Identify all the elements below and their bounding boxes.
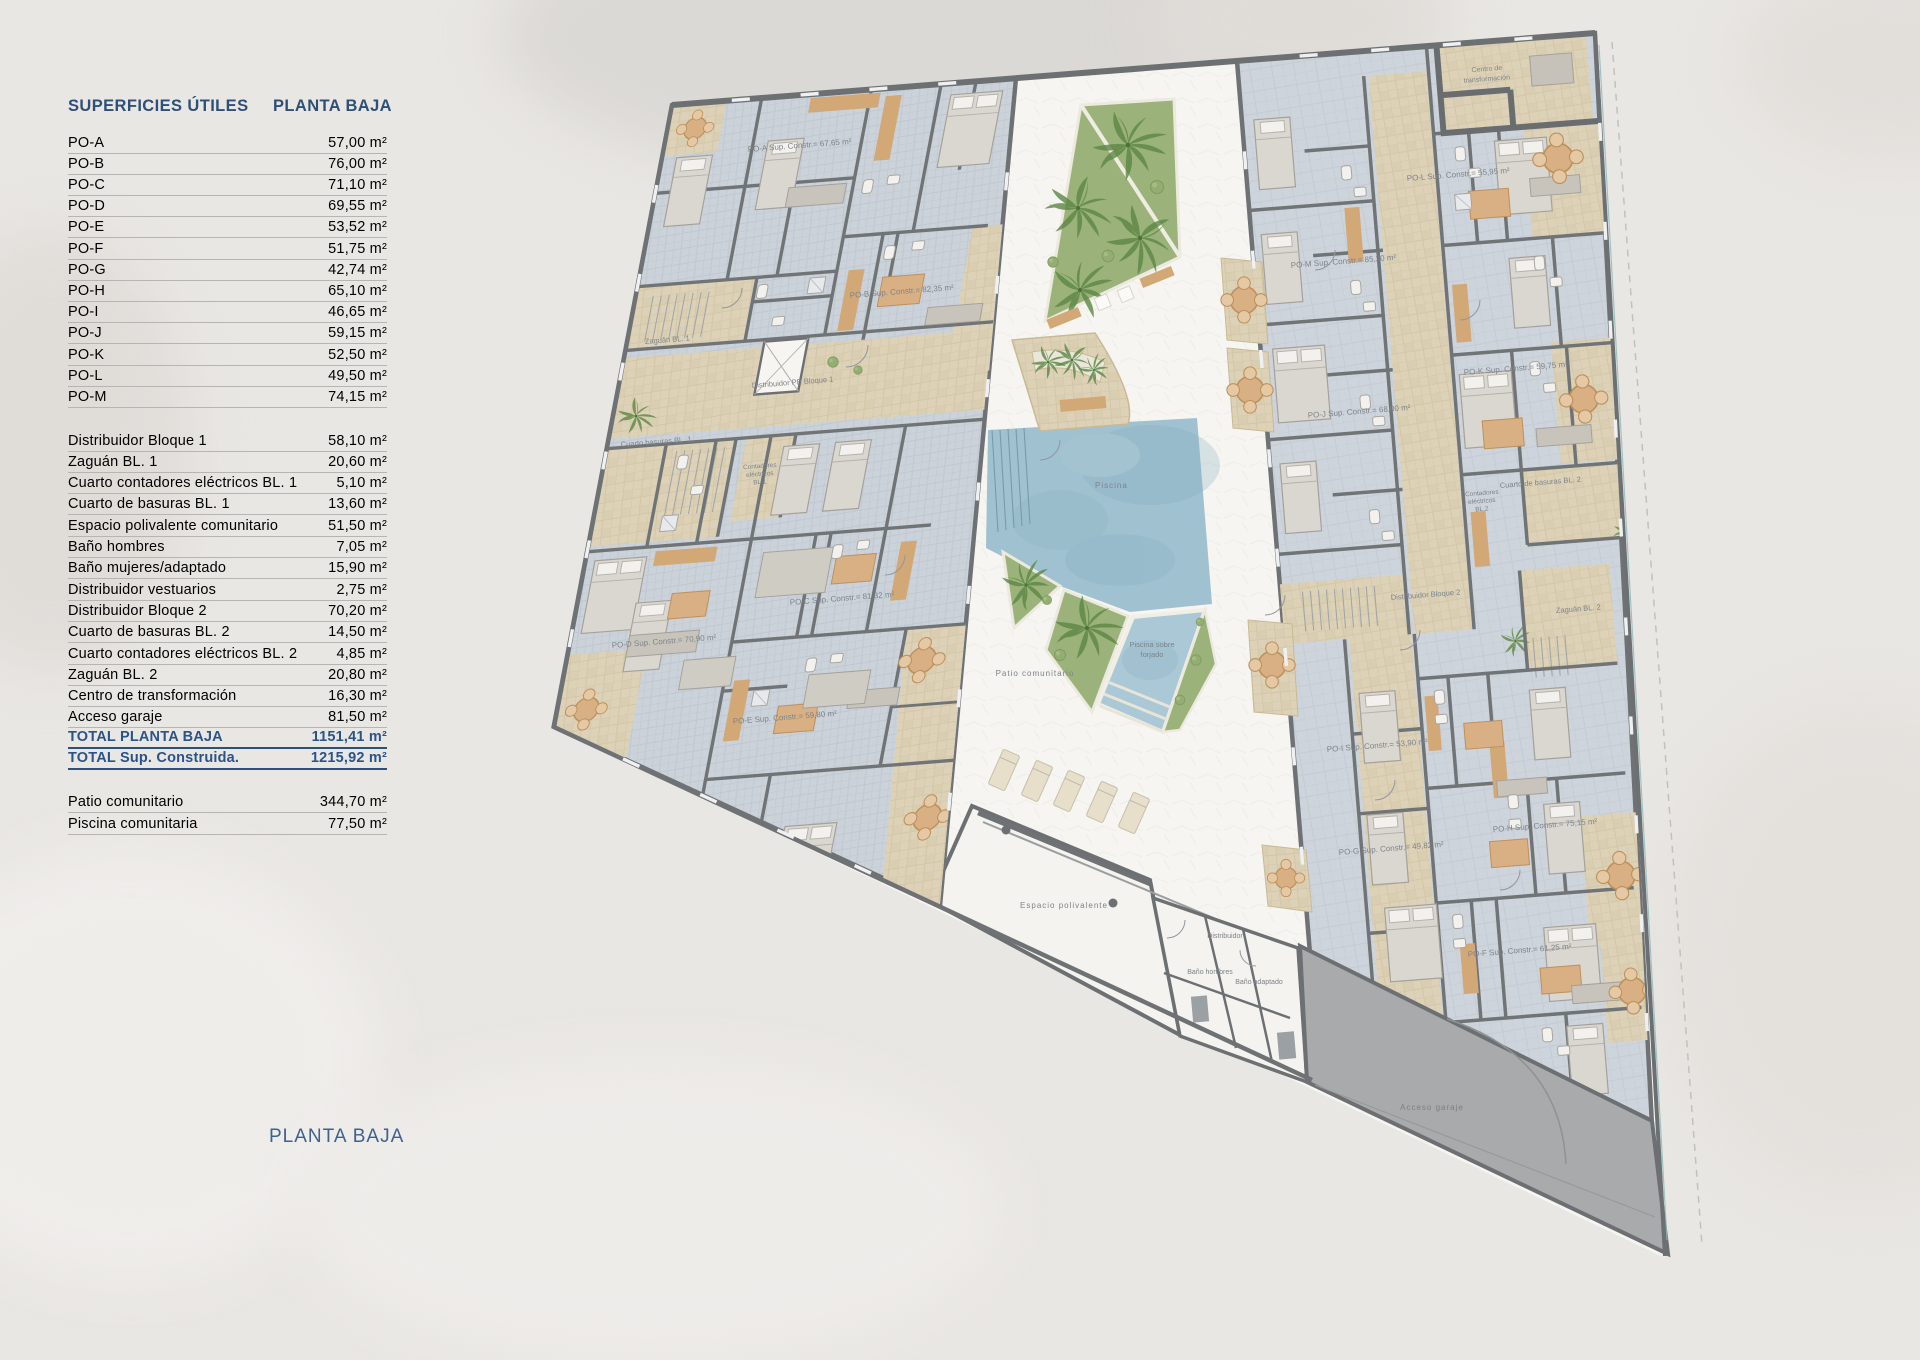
- svg-text:Piscina: Piscina: [1095, 481, 1128, 490]
- svg-text:Patio comunitario: Patio comunitario: [996, 669, 1075, 678]
- svg-text:Distribuidor: Distribuidor: [1207, 933, 1243, 940]
- svg-text:forjado: forjado: [1141, 650, 1164, 659]
- svg-text:Espacio polivalente: Espacio polivalente: [1020, 901, 1108, 910]
- svg-text:Baño hombres: Baño hombres: [1187, 969, 1233, 976]
- svg-text:BL.2: BL.2: [1475, 505, 1489, 513]
- svg-text:Piscina sobre: Piscina sobre: [1129, 640, 1174, 649]
- svg-text:Baño adaptado: Baño adaptado: [1235, 979, 1283, 986]
- svg-text:Acceso garaje: Acceso garaje: [1400, 1103, 1464, 1112]
- svg-text:BL.1: BL.1: [753, 478, 767, 486]
